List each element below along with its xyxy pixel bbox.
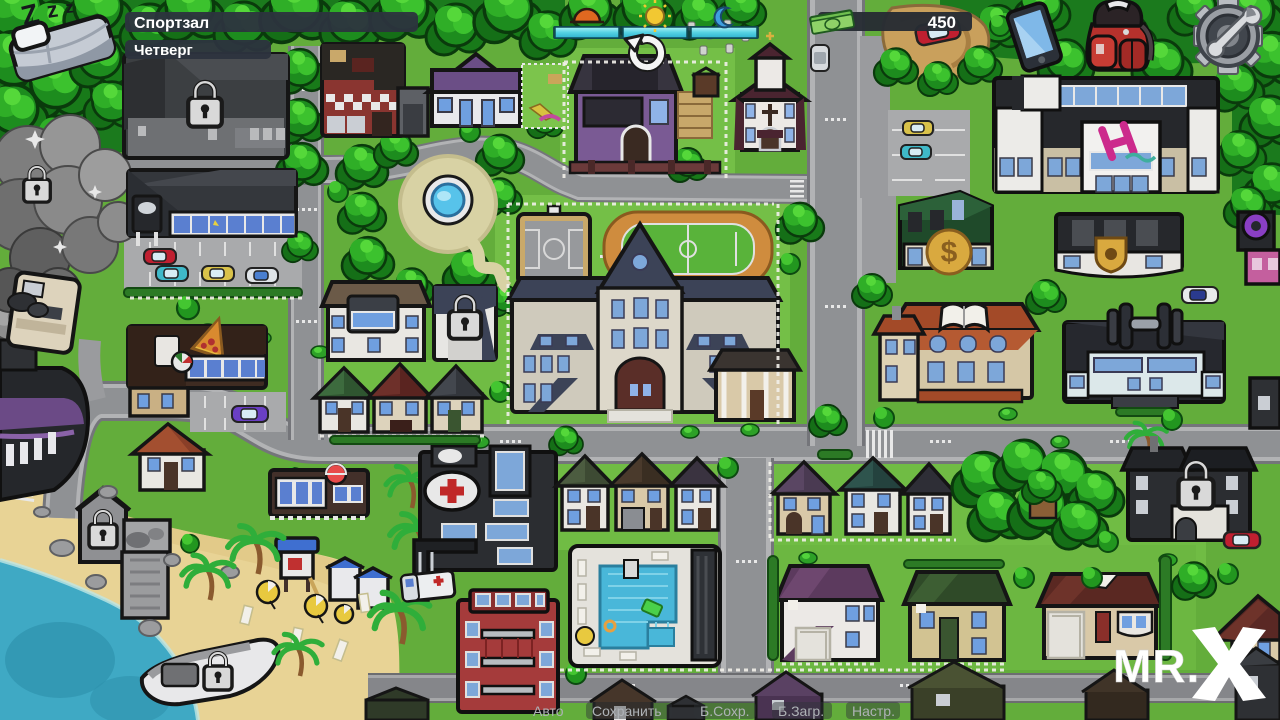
svg-text:MR.: MR. <box>1113 640 1200 692</box>
svg-text:Б.Загр.: Б.Загр. <box>778 703 824 719</box>
svg-text:z: z <box>65 0 74 17</box>
svg-text:Б.Сохр.: Б.Сохр. <box>700 703 750 719</box>
svg-text:Спортзал: Спортзал <box>134 15 209 32</box>
svg-text:Четверг: Четверг <box>134 42 193 59</box>
svg-text:450: 450 <box>928 13 956 32</box>
svg-text:Сохранить: Сохранить <box>592 703 662 719</box>
svg-text:$: $ <box>941 236 958 269</box>
svg-text:Настр.: Настр. <box>852 703 895 719</box>
svg-text:Авто: Авто <box>533 703 564 719</box>
